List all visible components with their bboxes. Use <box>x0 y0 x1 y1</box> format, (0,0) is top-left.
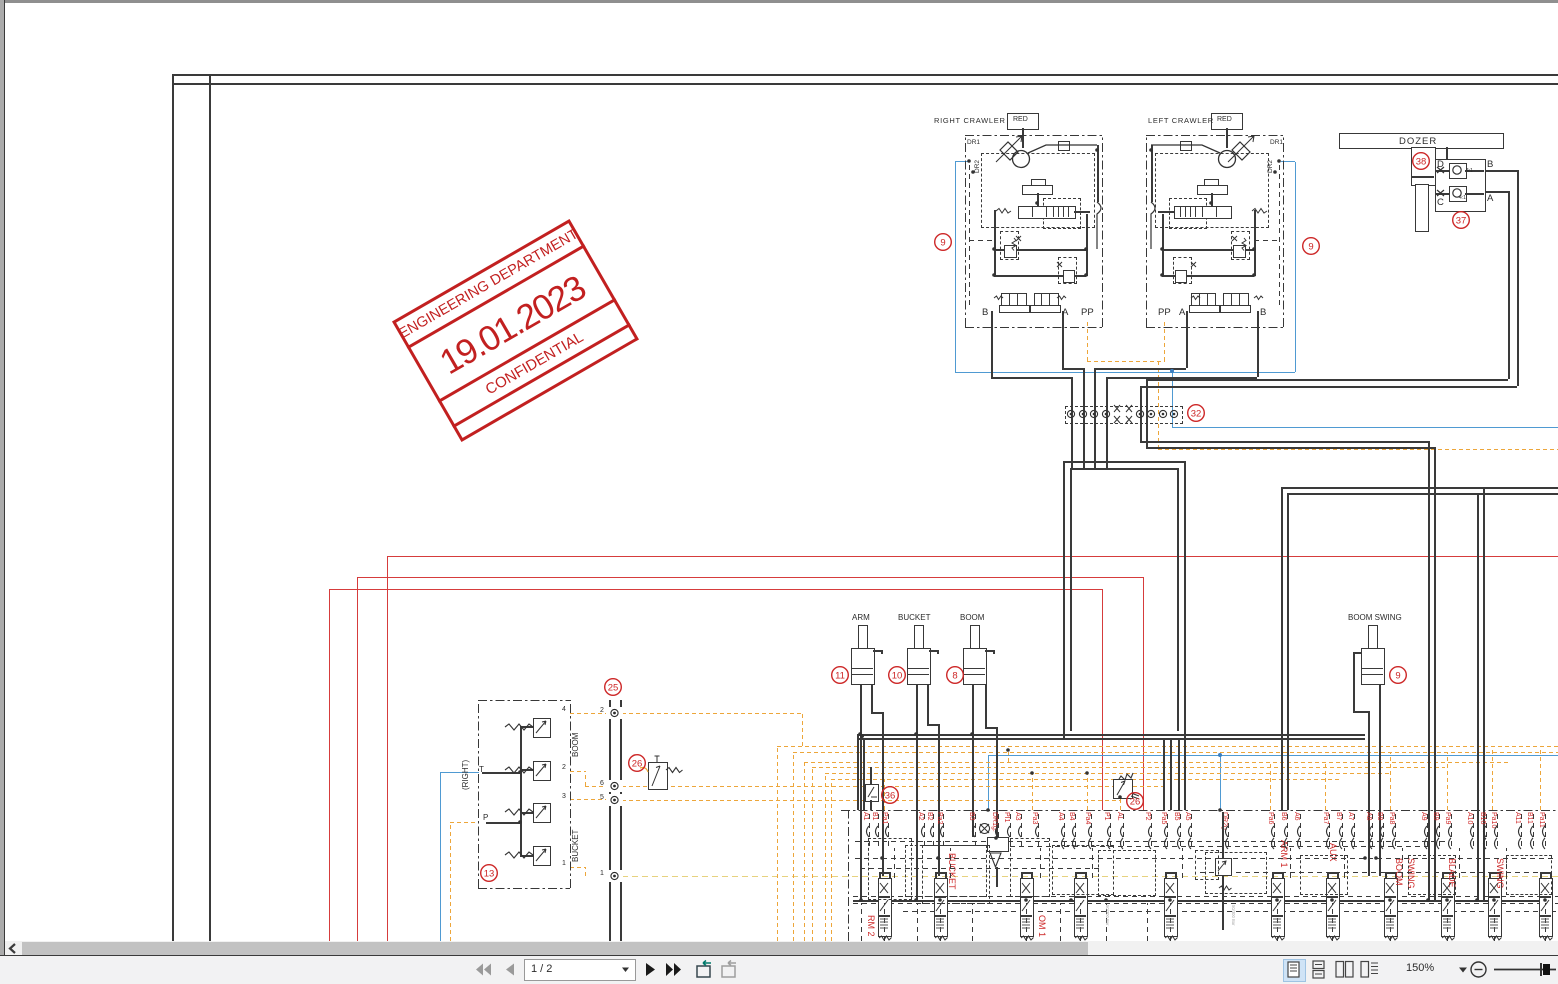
svg-text:8: 8 <box>952 670 957 681</box>
svg-text:10: 10 <box>892 670 903 681</box>
svg-text:38: 38 <box>1416 156 1427 167</box>
svg-text:9: 9 <box>940 237 945 248</box>
svg-text:9: 9 <box>1395 670 1400 681</box>
svg-text:36: 36 <box>885 790 896 801</box>
svg-text:26: 26 <box>632 758 643 769</box>
svg-text:13: 13 <box>484 868 495 879</box>
svg-text:11: 11 <box>835 670 845 681</box>
svg-text:26: 26 <box>1130 796 1141 807</box>
svg-text:9: 9 <box>1308 241 1313 252</box>
svg-text:25: 25 <box>608 682 619 693</box>
svg-text:32: 32 <box>1191 408 1202 419</box>
svg-text:37: 37 <box>1456 215 1467 226</box>
